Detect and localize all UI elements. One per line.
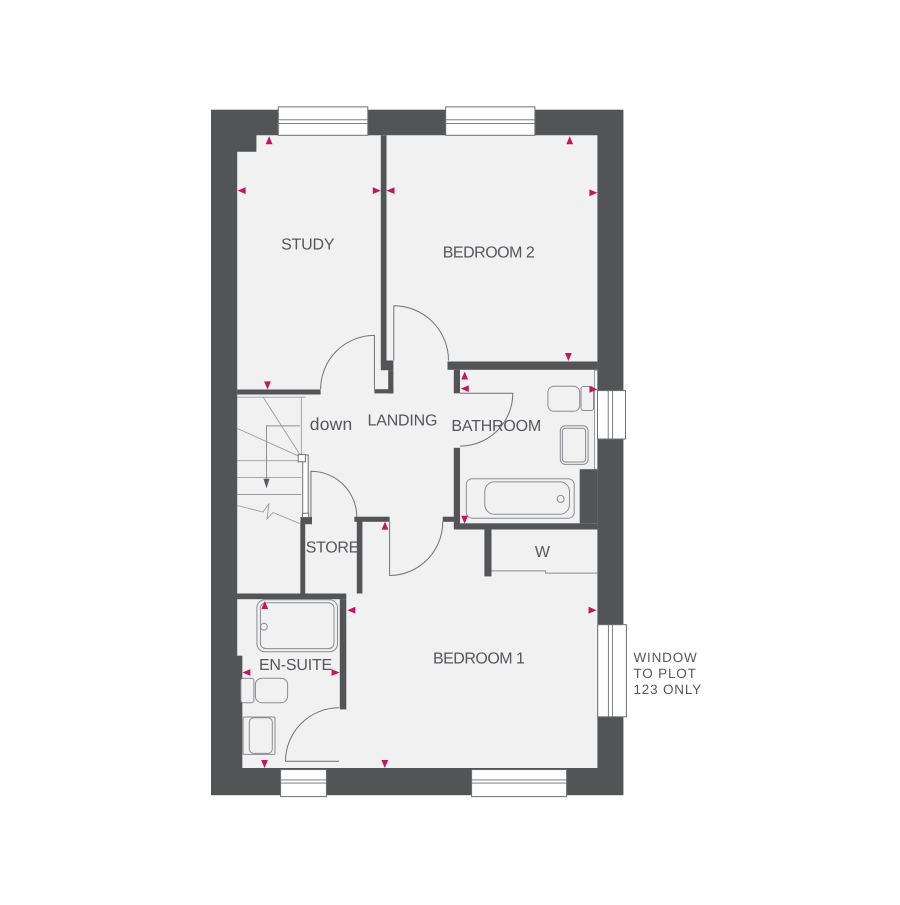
svg-text:down: down (310, 414, 353, 434)
svg-text:TO PLOT: TO PLOT (634, 666, 697, 681)
svg-text:EN-SUITE: EN-SUITE (259, 657, 332, 674)
svg-text:W: W (535, 544, 551, 561)
svg-text:BEDROOM 2: BEDROOM 2 (443, 244, 535, 261)
svg-text:LANDING: LANDING (368, 413, 438, 430)
svg-text:STORE: STORE (306, 540, 359, 557)
svg-text:BATHROOM: BATHROOM (451, 418, 541, 435)
svg-text:123 ONLY: 123 ONLY (634, 682, 702, 697)
svg-text:BEDROOM 1: BEDROOM 1 (433, 651, 525, 668)
svg-text:WINDOW: WINDOW (634, 650, 698, 665)
svg-text:STUDY: STUDY (281, 237, 335, 254)
